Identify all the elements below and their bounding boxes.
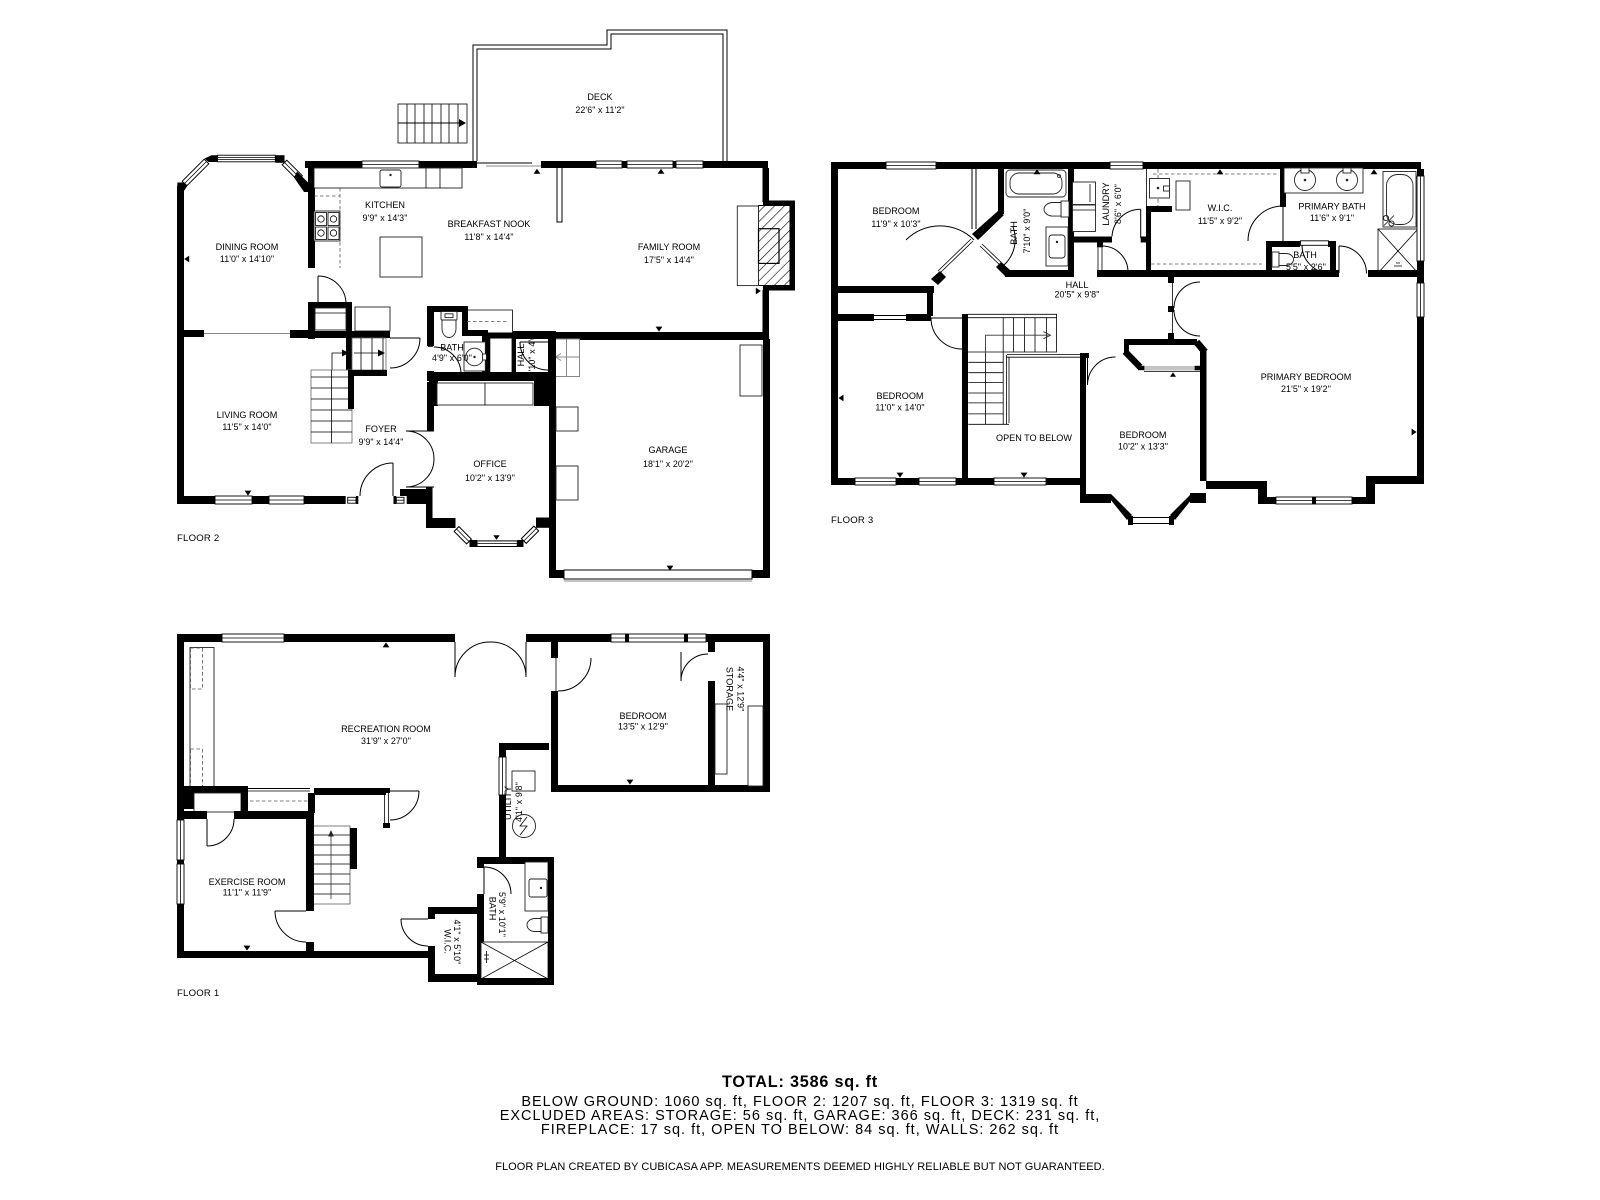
svg-text:DINING ROOM: DINING ROOM bbox=[216, 242, 279, 252]
svg-text:8'6" x 6'0": 8'6" x 6'0" bbox=[1113, 184, 1123, 224]
svg-text:STORAGE: STORAGE bbox=[725, 667, 735, 711]
svg-text:BATH: BATH bbox=[1293, 250, 1317, 260]
svg-text:BATH: BATH bbox=[488, 897, 498, 921]
svg-text:22'6" x 11'2": 22'6" x 11'2" bbox=[575, 105, 624, 115]
svg-text:TOTAL: 3586 sq. ft: TOTAL: 3586 sq. ft bbox=[722, 1073, 878, 1091]
svg-text:10'2" x 13'3": 10'2" x 13'3" bbox=[1118, 442, 1168, 452]
svg-text:4'1" x 9'8": 4'1" x 9'8" bbox=[514, 782, 524, 822]
svg-text:FLOOR PLAN CREATED BY CUBICASA: FLOOR PLAN CREATED BY CUBICASA APP. MEAS… bbox=[495, 1161, 1105, 1173]
svg-text:11'1" x 11'9": 11'1" x 11'9" bbox=[223, 888, 272, 898]
svg-text:FLOOR 3: FLOOR 3 bbox=[831, 515, 873, 526]
svg-text:PRIMARY BEDROOM: PRIMARY BEDROOM bbox=[1261, 372, 1352, 382]
svg-text:11'8" x 14'4": 11'8" x 14'4" bbox=[464, 232, 513, 242]
svg-text:5'9" x 10'1": 5'9" x 10'1" bbox=[497, 892, 507, 937]
svg-text:BATH: BATH bbox=[440, 343, 464, 353]
svg-text:9'9" x 14'4": 9'9" x 14'4" bbox=[359, 437, 404, 447]
svg-text:FOYER: FOYER bbox=[365, 424, 397, 434]
svg-text:4'4" x 12'9": 4'4" x 12'9" bbox=[736, 667, 746, 712]
svg-text:LIVING ROOM: LIVING ROOM bbox=[217, 410, 278, 420]
svg-text:HALL: HALL bbox=[1066, 280, 1089, 290]
svg-text:PRIMARY BATH: PRIMARY BATH bbox=[1298, 202, 1365, 212]
svg-text:17'5" x 14'4": 17'5" x 14'4" bbox=[644, 255, 694, 265]
svg-text:2'10" x 4'0": 2'10" x 4'0" bbox=[527, 332, 537, 377]
svg-text:OPEN TO BELOW: OPEN TO BELOW bbox=[996, 433, 1072, 443]
svg-text:FAMILY ROOM: FAMILY ROOM bbox=[638, 242, 700, 252]
svg-text:FLOOR 1: FLOOR 1 bbox=[177, 988, 219, 999]
svg-text:BREAKFAST NOOK: BREAKFAST NOOK bbox=[448, 219, 531, 229]
svg-text:13'5" x 12'9": 13'5" x 12'9" bbox=[618, 722, 668, 732]
svg-text:11'5" x 14'0": 11'5" x 14'0" bbox=[222, 422, 271, 432]
svg-text:4'9" x 6'0": 4'9" x 6'0" bbox=[432, 353, 472, 363]
svg-text:BEDROOM: BEDROOM bbox=[1120, 430, 1167, 440]
svg-text:21'5" x 19'2": 21'5" x 19'2" bbox=[1281, 384, 1331, 394]
svg-text:7'10" x 9'0": 7'10" x 9'0" bbox=[1022, 209, 1032, 254]
svg-text:11'5" x 9'2": 11'5" x 9'2" bbox=[1198, 216, 1242, 226]
svg-text:HALL: HALL bbox=[516, 344, 526, 367]
svg-text:10'2" x 13'9": 10'2" x 13'9" bbox=[465, 473, 515, 483]
svg-text:W.I.C.: W.I.C. bbox=[443, 929, 453, 954]
svg-text:20'5" x 9'8": 20'5" x 9'8" bbox=[1055, 290, 1100, 300]
svg-text:GARAGE: GARAGE bbox=[649, 445, 688, 455]
svg-text:11'0" x 14'10": 11'0" x 14'10" bbox=[220, 254, 274, 264]
svg-text:EXERCISE ROOM: EXERCISE ROOM bbox=[209, 877, 286, 887]
svg-text:11'0" x 14'0": 11'0" x 14'0" bbox=[875, 403, 924, 413]
svg-text:18'1" x 20'2": 18'1" x 20'2" bbox=[643, 459, 693, 469]
svg-text:BEDROOM: BEDROOM bbox=[873, 206, 920, 216]
svg-text:9'9" x 14'3": 9'9" x 14'3" bbox=[363, 213, 408, 223]
svg-text:DECK: DECK bbox=[587, 92, 612, 102]
svg-text:11'9" x 10'3": 11'9" x 10'3" bbox=[871, 219, 920, 229]
svg-text:BEDROOM: BEDROOM bbox=[620, 711, 667, 721]
svg-text:BATH: BATH bbox=[1009, 221, 1019, 245]
svg-text:FLOOR 2: FLOOR 2 bbox=[177, 533, 219, 544]
svg-text:FIREPLACE: 17 sq. ft, OPEN TO: FIREPLACE: 17 sq. ft, OPEN TO BELOW: 84 … bbox=[541, 1122, 1059, 1138]
svg-text:BEDROOM: BEDROOM bbox=[877, 391, 924, 401]
svg-text:UTILITY: UTILITY bbox=[503, 786, 513, 820]
svg-text:LAUNDRY: LAUNDRY bbox=[1101, 182, 1111, 225]
svg-text:RECREATION ROOM: RECREATION ROOM bbox=[341, 724, 431, 734]
svg-text:OFFICE: OFFICE bbox=[473, 459, 506, 469]
svg-text:W.I.C.: W.I.C. bbox=[1208, 203, 1233, 213]
svg-text:31'9" x 27'0": 31'9" x 27'0" bbox=[361, 736, 411, 746]
svg-text:KITCHEN: KITCHEN bbox=[365, 200, 405, 210]
svg-text:5'5" x 2'6": 5'5" x 2'6" bbox=[1286, 262, 1326, 272]
svg-text:4'1" x 5'10": 4'1" x 5'10" bbox=[452, 920, 462, 965]
svg-text:11'6" x 9'1": 11'6" x 9'1" bbox=[1310, 213, 1354, 223]
